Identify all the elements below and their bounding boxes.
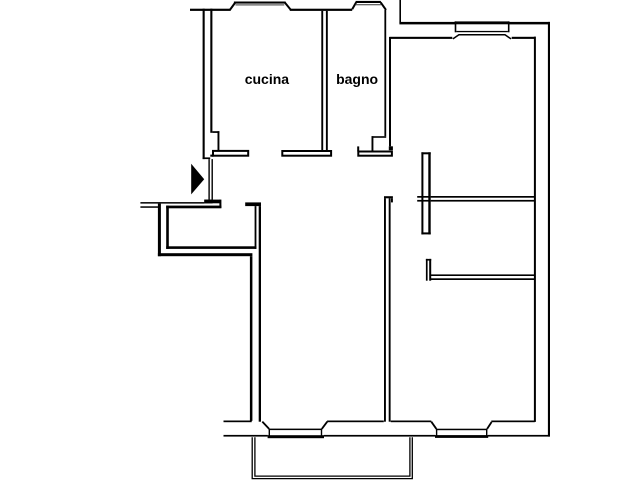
svg-text:bagno: bagno [336,71,378,87]
svg-text:cucina: cucina [245,71,290,87]
